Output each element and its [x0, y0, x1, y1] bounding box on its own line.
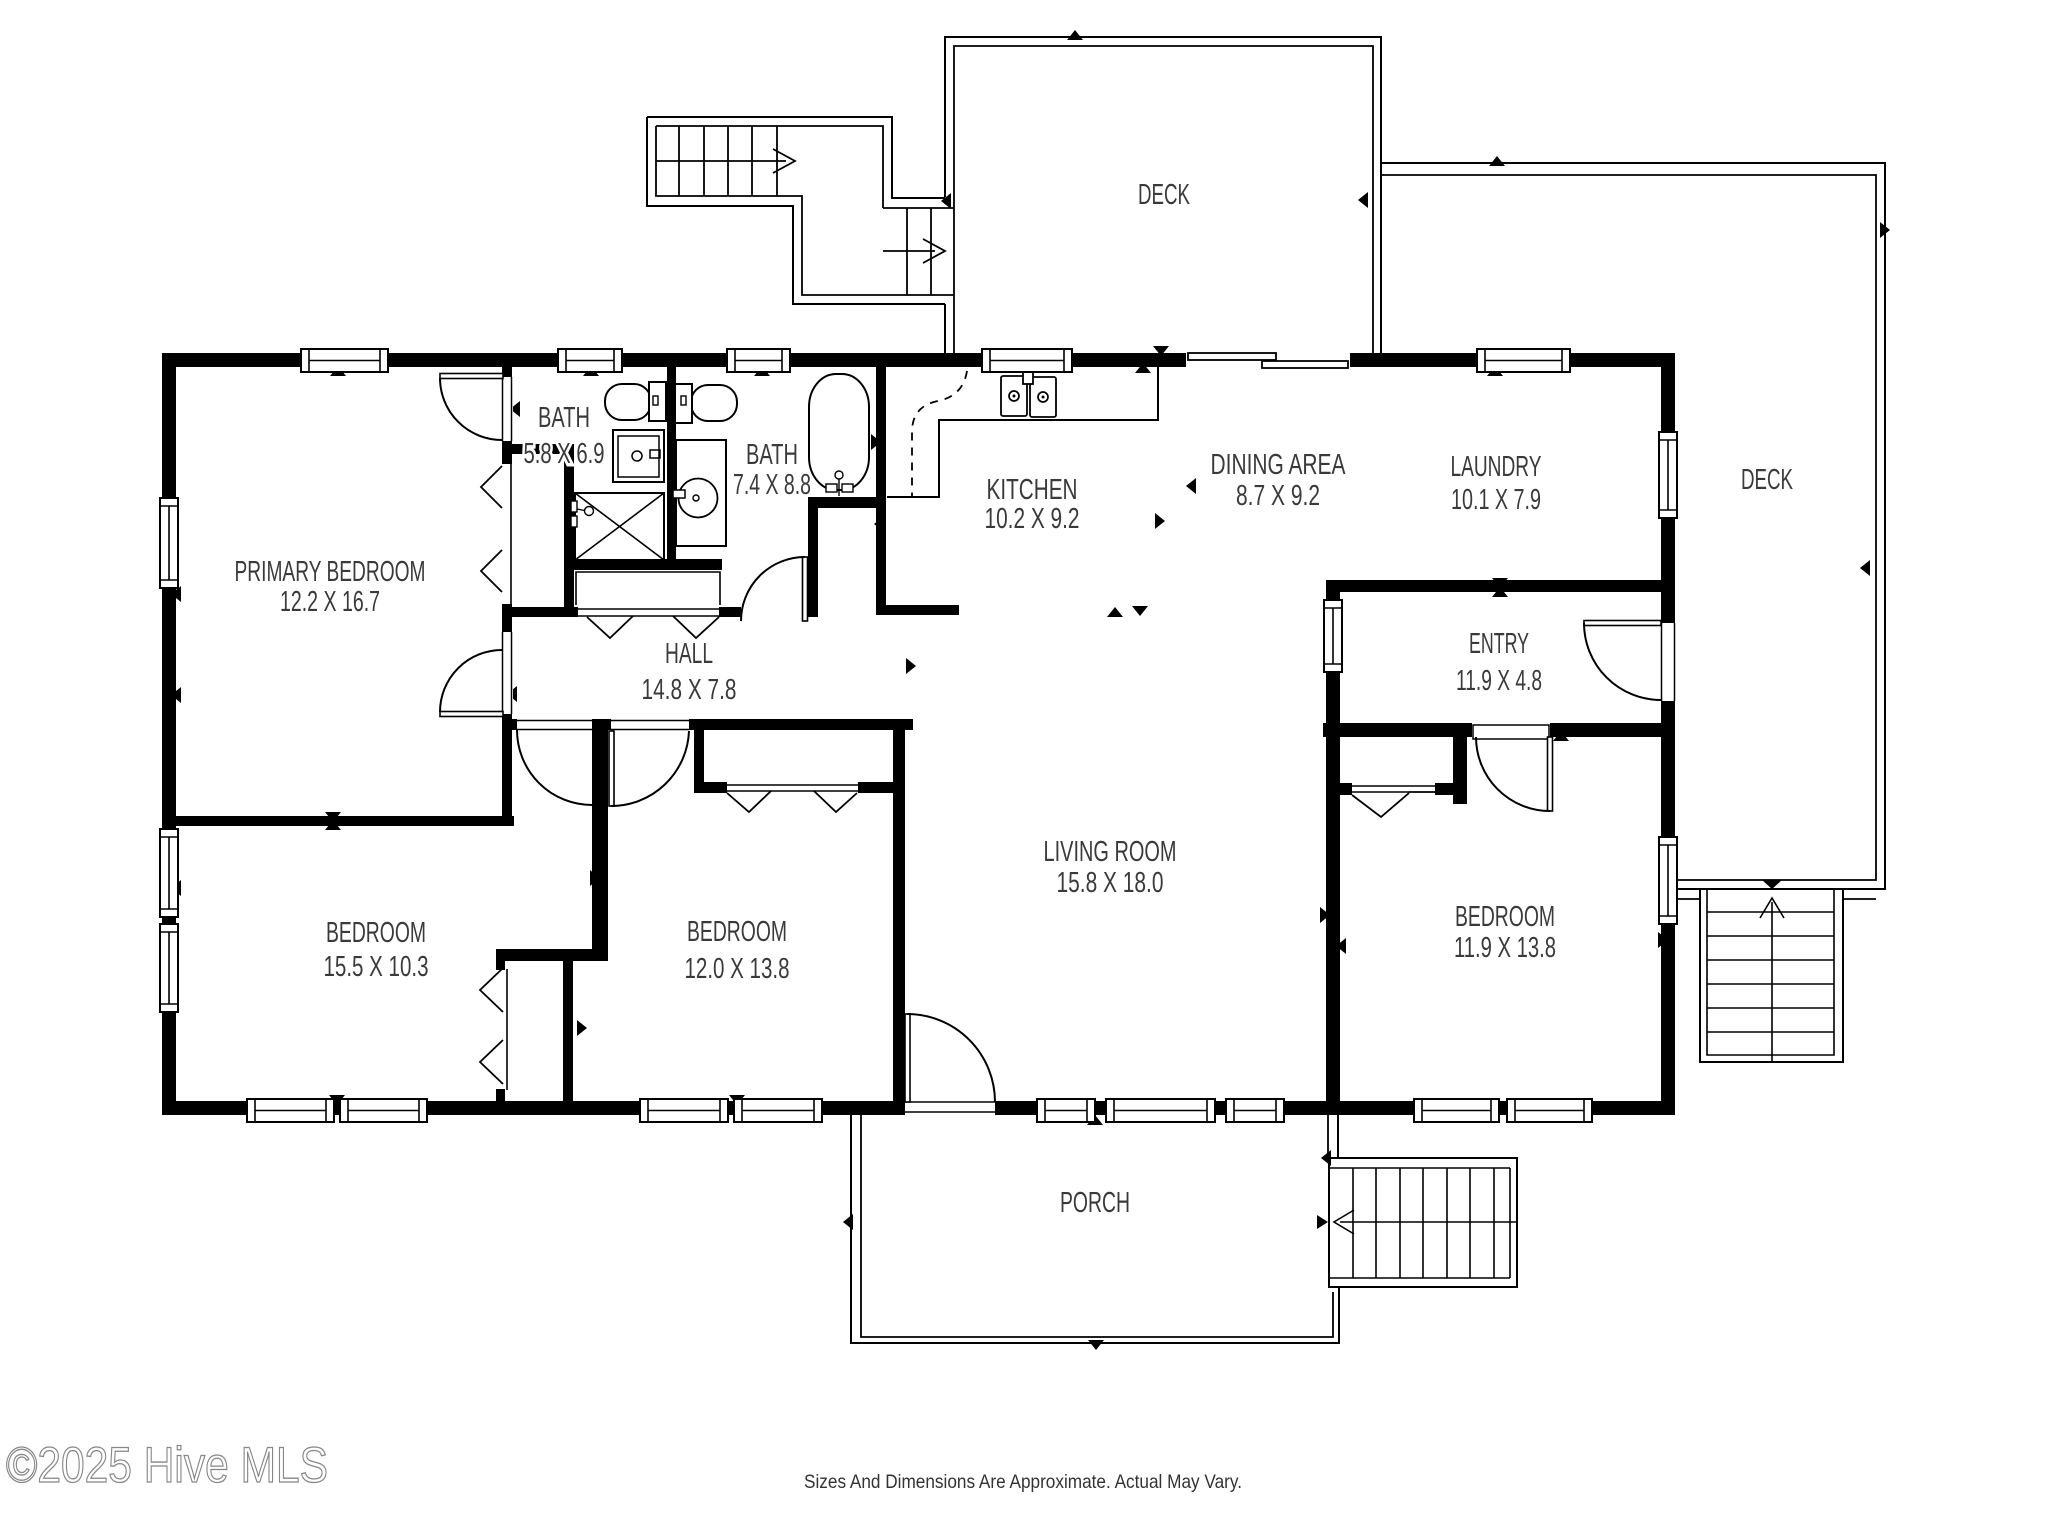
svg-text:15.8 X 18.0: 15.8 X 18.0	[1057, 867, 1164, 899]
svg-text:11.9 X 4.8: 11.9 X 4.8	[1456, 665, 1542, 697]
svg-text:BATH: BATH	[538, 402, 590, 434]
svg-text:BEDROOM: BEDROOM	[1455, 901, 1555, 933]
svg-text:©2025 Hive MLS: ©2025 Hive MLS	[6, 1437, 328, 1493]
svg-text:14.8 X 7.8: 14.8 X 7.8	[642, 674, 737, 706]
svg-text:Sizes And Dimensions Are Appro: Sizes And Dimensions Are Approximate. Ac…	[804, 1471, 1242, 1493]
svg-text:12.0 X 13.8: 12.0 X 13.8	[685, 953, 790, 985]
svg-text:LAUNDRY: LAUNDRY	[1451, 451, 1542, 483]
svg-text:7.4 X 8.8: 7.4 X 8.8	[733, 469, 811, 501]
svg-text:10.1 X 7.9: 10.1 X 7.9	[1451, 484, 1541, 516]
svg-text:DECK: DECK	[1741, 464, 1793, 496]
svg-text:PORCH: PORCH	[1060, 1187, 1130, 1219]
svg-text:DINING AREA: DINING AREA	[1211, 449, 1346, 481]
svg-text:8.7 X 9.2: 8.7 X 9.2	[1236, 480, 1320, 512]
svg-text:5.8 X 6.9: 5.8 X 6.9	[524, 438, 605, 470]
svg-text:PRIMARY BEDROOM: PRIMARY BEDROOM	[235, 556, 426, 588]
svg-text:12.2 X 16.7: 12.2 X 16.7	[280, 586, 380, 618]
svg-text:11.9 X 13.8: 11.9 X 13.8	[1454, 932, 1556, 964]
svg-text:BATH: BATH	[746, 439, 798, 471]
svg-text:KITCHEN: KITCHEN	[987, 474, 1078, 506]
svg-text:15.5 X 10.3: 15.5 X 10.3	[324, 951, 429, 983]
svg-text:LIVING ROOM: LIVING ROOM	[1044, 836, 1177, 868]
svg-text:BEDROOM: BEDROOM	[326, 917, 426, 949]
svg-text:BEDROOM: BEDROOM	[687, 916, 787, 948]
svg-text:10.2 X 9.2: 10.2 X 9.2	[985, 503, 1080, 535]
svg-text:HALL: HALL	[665, 638, 713, 670]
svg-text:ENTRY: ENTRY	[1469, 628, 1529, 660]
svg-text:DECK: DECK	[1138, 179, 1190, 211]
